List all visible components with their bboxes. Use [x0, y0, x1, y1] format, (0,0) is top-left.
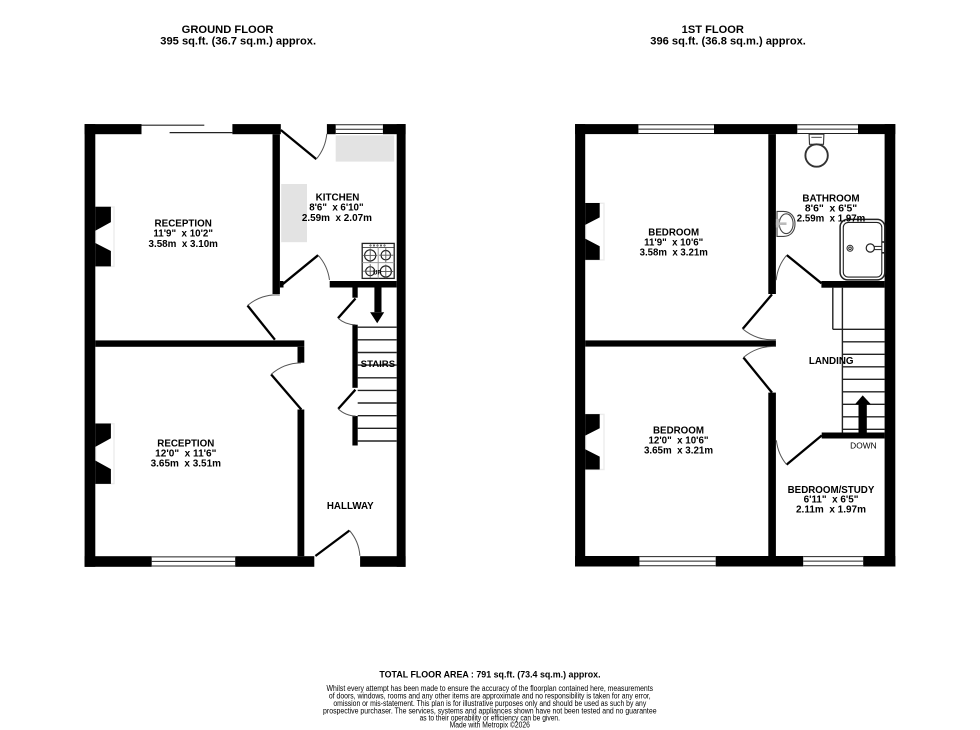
- svg-text:HALLWAY: HALLWAY: [327, 501, 374, 512]
- svg-text:3.58m x 3.21m: 3.58m x 3.21m: [640, 248, 708, 259]
- svg-text:3.65m x 3.21m: 3.65m x 3.21m: [644, 446, 713, 457]
- svg-text:DOWN: DOWN: [850, 442, 877, 451]
- svg-text:396 sq.ft. (36.8 sq.m.) approx: 396 sq.ft. (36.8 sq.m.) approx.: [650, 36, 806, 48]
- svg-text:Made with Metropix ©2026: Made with Metropix ©2026: [450, 721, 531, 730]
- svg-text:STAIRS: STAIRS: [361, 359, 395, 369]
- svg-text:2.11m x 1.97m: 2.11m x 1.97m: [796, 504, 866, 515]
- svg-text:395 sq.ft. (36.7 sq.m.) approx: 395 sq.ft. (36.7 sq.m.) approx.: [160, 36, 316, 48]
- svg-text:1ST FLOOR: 1ST FLOOR: [682, 24, 744, 36]
- svg-text:GROUND FLOOR: GROUND FLOOR: [182, 24, 274, 36]
- svg-text:2.59m x 1.97m: 2.59m x 1.97m: [797, 213, 866, 224]
- svg-text:LANDING: LANDING: [809, 356, 854, 367]
- svg-text:3.58m x 3.10m: 3.58m x 3.10m: [149, 239, 219, 250]
- svg-text:UP: UP: [373, 271, 381, 277]
- svg-text:TOTAL FLOOR AREA : 791 sq.ft.: TOTAL FLOOR AREA : 791 sq.ft. (73.4 sq.m…: [379, 670, 600, 681]
- svg-text:3.65m x 3.51m: 3.65m x 3.51m: [151, 459, 222, 470]
- svg-text:2.59m x 2.07m: 2.59m x 2.07m: [302, 213, 372, 224]
